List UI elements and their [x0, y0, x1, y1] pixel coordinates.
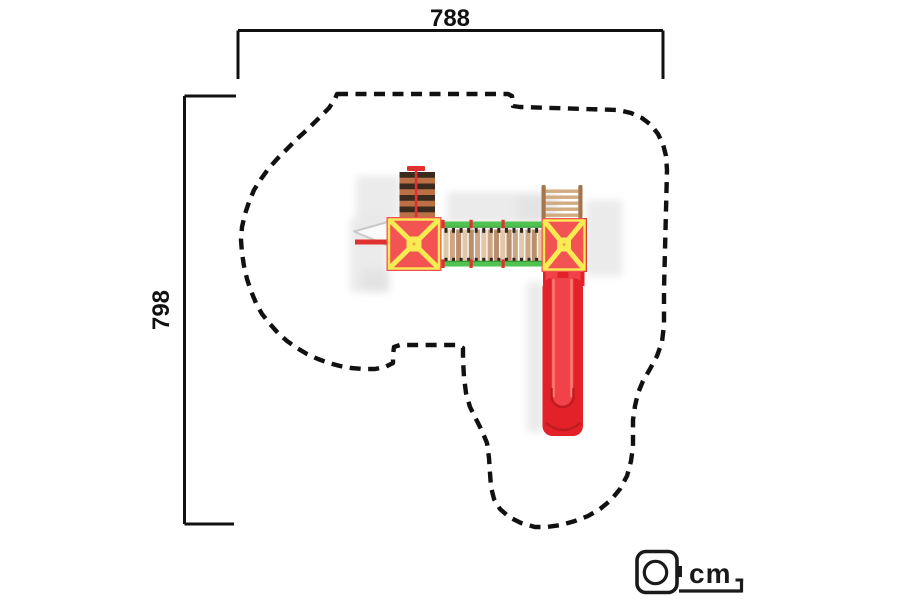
width-dimension-label: 788: [430, 5, 470, 32]
bridge: [442, 220, 553, 268]
bridge-planks: [444, 230, 550, 262]
right-tower-roof: [542, 218, 588, 272]
playground-plan-diagram: 788 798 cm: [0, 0, 900, 600]
height-dimension: 798: [148, 96, 236, 524]
slide: [543, 266, 585, 436]
climbing-rope: [415, 166, 418, 217]
diagram-svg: 788 798 cm: [0, 0, 900, 600]
safety-zone-outline: [241, 94, 667, 527]
bridge-rail-top: [442, 222, 553, 228]
left-tower-roof: [387, 217, 442, 271]
height-dimension-label: 798: [148, 290, 175, 330]
width-dimension: 788: [238, 5, 663, 79]
unit-indicator: cm: [637, 552, 743, 593]
climbing-wall: [400, 166, 436, 218]
unit-label: cm: [689, 558, 731, 589]
bridge-rail-bottom: [442, 261, 553, 267]
